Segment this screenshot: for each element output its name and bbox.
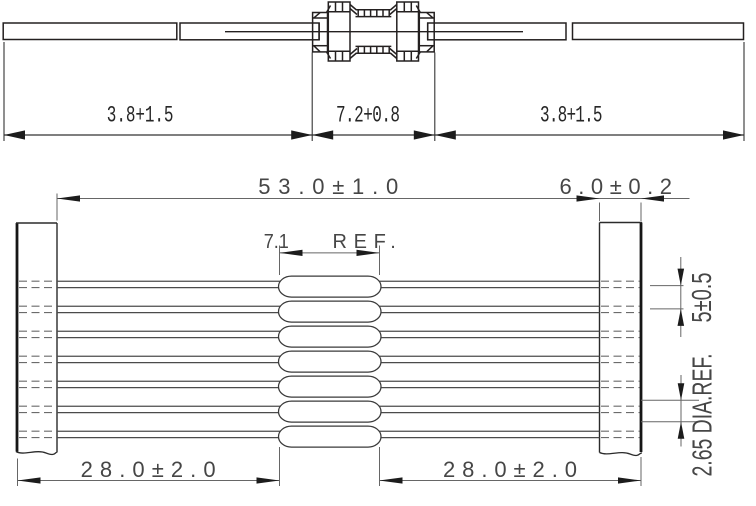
svg-text:7.1: 7.1 — [264, 231, 289, 253]
svg-text:REF.: REF. — [333, 231, 396, 253]
svg-text:6.0±0.2: 6.0±0.2 — [560, 174, 673, 199]
svg-text:3.8+1.5: 3.8+1.5 — [540, 103, 603, 128]
svg-text:3.8+1.5: 3.8+1.5 — [107, 103, 174, 128]
svg-text:5±0.5: 5±0.5 — [686, 273, 717, 323]
svg-text:2.65 DIA.REF.: 2.65 DIA.REF. — [687, 354, 718, 477]
svg-text:28.0±2.0: 28.0±2.0 — [443, 457, 577, 482]
svg-text:7.2+0.8: 7.2+0.8 — [336, 103, 400, 128]
svg-text:28.0±2.0: 28.0±2.0 — [81, 457, 216, 482]
svg-text:53.0±1.0: 53.0±1.0 — [258, 174, 398, 199]
